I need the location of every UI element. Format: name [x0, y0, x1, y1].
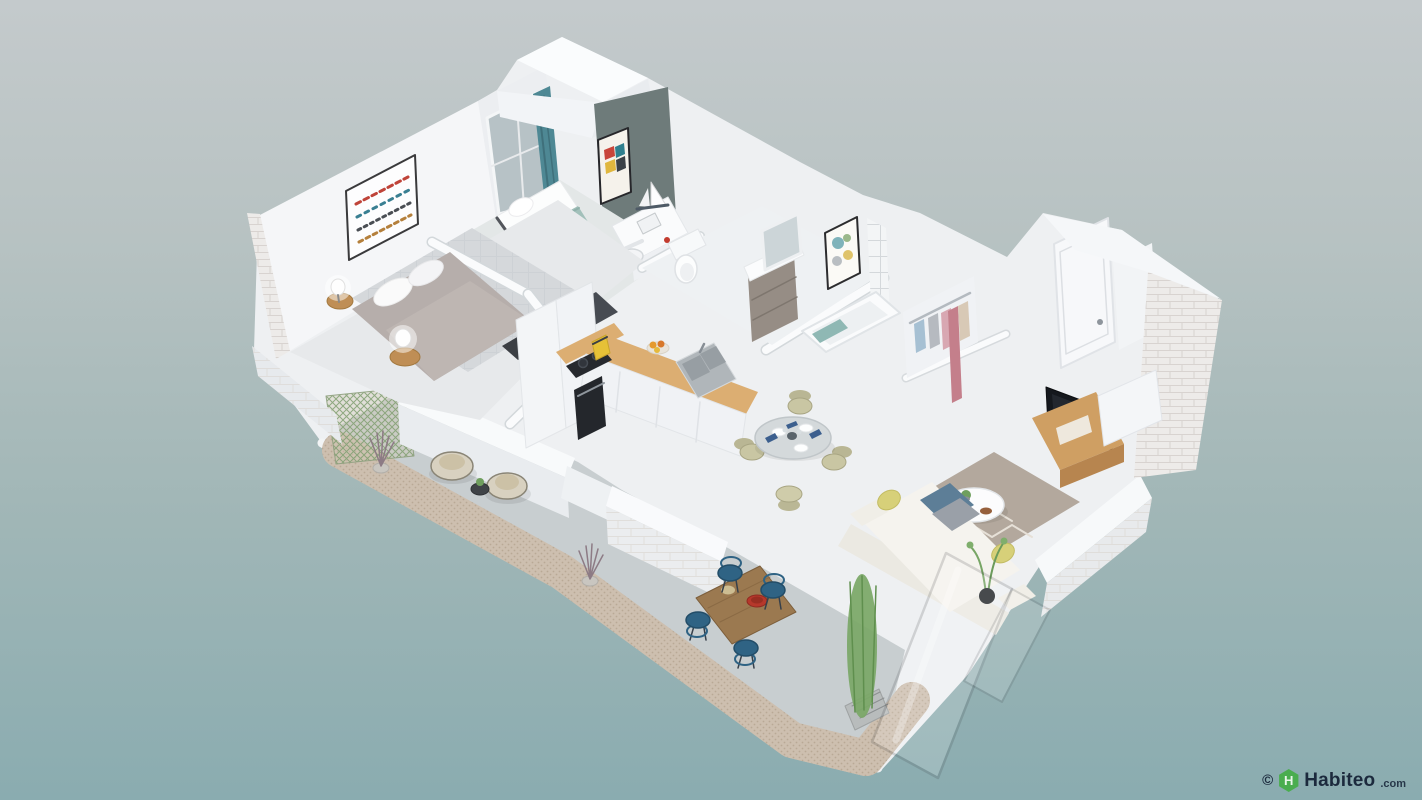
- plant-sofa-leaf-b: [967, 542, 974, 549]
- floor-plan-canvas: [0, 0, 1422, 800]
- wire-chair-blue-2: [761, 582, 785, 598]
- plant-sofa-leaf-a: [1001, 538, 1008, 545]
- glass-a: [783, 428, 788, 433]
- dining-chair-north: [788, 398, 812, 414]
- wire-chair-blue-4: [734, 640, 758, 656]
- wire-chair-blue-3: [686, 612, 710, 628]
- watermark-brand: Habiteo: [1304, 771, 1375, 790]
- fruit-lemon: [654, 347, 660, 353]
- lamp-left-stem: [338, 295, 339, 302]
- wicker-chair-a-cushion: [439, 454, 465, 470]
- artwork-circle-yellow: [843, 250, 853, 260]
- habiteo-hexagon-icon: H: [1278, 769, 1299, 792]
- plate-c: [794, 444, 808, 452]
- dining-chair-east: [822, 454, 846, 470]
- dining-chair-south: [776, 486, 802, 502]
- wardrobe-cloth-gray: [928, 313, 940, 349]
- habiteo-icon-letter: H: [1284, 774, 1293, 787]
- fruit-orange-b: [658, 341, 665, 348]
- lamp-right: [395, 329, 411, 347]
- artwork-circle-green: [843, 234, 851, 242]
- desk-toy-red: [664, 237, 670, 243]
- glass-b: [797, 430, 802, 435]
- wardrobe-cloth-blue: [914, 319, 926, 353]
- outdoor-red-bowl-inner: [751, 597, 763, 604]
- lamp-left: [331, 279, 345, 295]
- entry-door-handle: [1097, 319, 1103, 325]
- watermark: © H Habiteo .com: [1262, 769, 1406, 792]
- cooktop-burner-a: [579, 359, 588, 368]
- artwork-circle-teal: [832, 237, 844, 249]
- toilet-seat: [680, 263, 694, 281]
- coffee-table-bowl: [980, 508, 992, 515]
- side-table-plant: [476, 478, 484, 486]
- floor-plan-screenshot: © H Habiteo .com: [0, 0, 1422, 800]
- copyright-icon: ©: [1262, 773, 1273, 788]
- table-centerpiece: [787, 432, 797, 440]
- artwork-circle-gray: [832, 256, 842, 266]
- wardrobe-cloth-beige: [958, 301, 970, 341]
- wicker-chair-b-cushion: [495, 474, 519, 490]
- watermark-tld: .com: [1380, 779, 1406, 790]
- wire-chair-blue-1: [718, 565, 742, 581]
